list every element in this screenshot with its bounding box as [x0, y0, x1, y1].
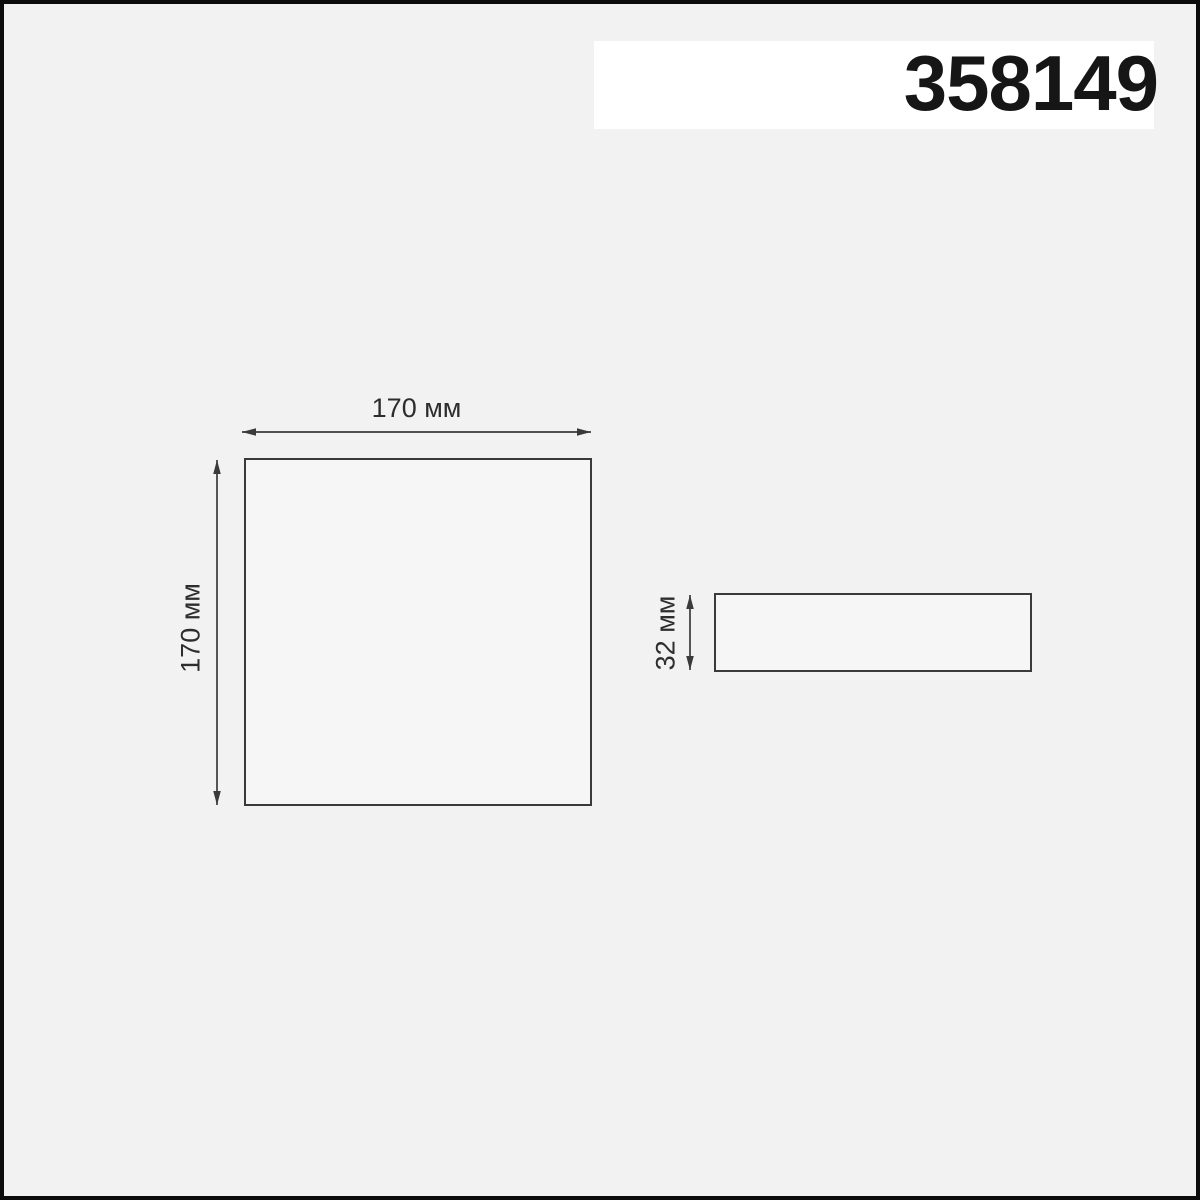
front-view-width-label: 170 мм	[241, 395, 592, 422]
product-code-band: 358149	[594, 41, 1154, 129]
front-view-height-label: 170 мм	[178, 583, 205, 673]
product-code: 358149	[904, 44, 1158, 122]
front-view-outline	[244, 458, 592, 806]
side-view-outline	[714, 593, 1032, 672]
side-view-height-label: 32 мм	[653, 596, 680, 671]
diagram-page: 358149 170 мм 170 мм 32 мм	[0, 0, 1200, 1200]
